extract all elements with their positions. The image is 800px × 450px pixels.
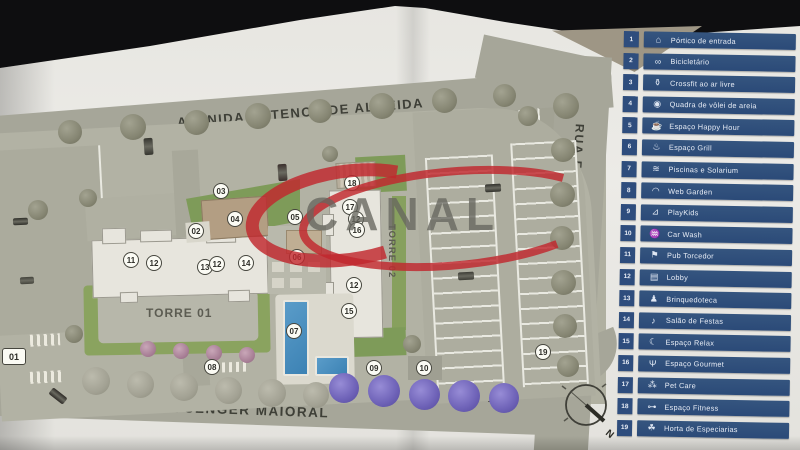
map-marker-04: 04 [227, 211, 243, 227]
map-marker-12: 12 [346, 277, 362, 293]
legend-label: PlayKids [668, 208, 699, 218]
legend-number: 10 [620, 225, 635, 241]
legend-number: 12 [620, 268, 635, 284]
gourmet-icon: Ψ [644, 358, 661, 368]
tree-icon [239, 347, 255, 363]
legend-number: 4 [623, 96, 638, 112]
map-marker-10: 10 [416, 360, 432, 376]
legend-label: Piscinas e Solarium [669, 165, 739, 175]
legend-label: Espaço Grill [669, 143, 712, 153]
grill-icon: ♨ [648, 142, 665, 153]
legend-item-7: 7≋Piscinas e Solarium [621, 161, 793, 180]
tree-icon [58, 120, 82, 144]
pet-care-icon: ⁂ [644, 379, 661, 390]
tree-icon [245, 103, 271, 129]
map-marker-06: 06 [289, 249, 305, 265]
pool-lane [313, 330, 335, 334]
compass-north-label: N [603, 428, 616, 441]
lobby-icon: ▤ [646, 271, 663, 282]
tree-icon [432, 88, 457, 113]
map-marker-18: 18 [344, 175, 360, 191]
entrance-gate-icon: ⌂ [650, 34, 667, 44]
party-hall-icon: ♪ [645, 315, 662, 325]
legend-bar: ♪Salão de Festas [639, 312, 791, 331]
map-marker-15: 15 [341, 303, 357, 319]
building-tower1-wing [120, 292, 138, 303]
legend-bar: ΨEspaço Gourmet [638, 355, 790, 374]
tree-icon [493, 84, 516, 107]
legend-label: Pórtico de entrada [671, 35, 736, 45]
legend-label: Pub Torcedor [667, 251, 714, 261]
legend-number: 14 [619, 312, 634, 328]
tree-icon [557, 355, 579, 377]
car-icon [277, 163, 287, 181]
tree-icon [322, 146, 338, 162]
map-marker-12: 12 [209, 256, 225, 272]
legend-number: 3 [623, 74, 638, 90]
legend-label: Car Wash [667, 230, 702, 240]
tree-icon [140, 341, 156, 357]
legend-number: 15 [618, 333, 633, 349]
brochure-photo: AVENIDA ANTENOR DE ALMEIDA RUA FIORAVANT… [0, 0, 800, 450]
legend-label: Horta de Especiarias [664, 424, 738, 434]
legend-bar: ⊿PlayKids [641, 204, 793, 223]
tree-icon [551, 138, 575, 162]
legend-number: 11 [620, 247, 635, 263]
legend-bar: ♨Espaço Grill [642, 139, 794, 158]
map-marker-01: 01 [2, 348, 26, 365]
legend-item-11: 11⚑Pub Torcedor [620, 247, 792, 266]
tree-icon [409, 379, 440, 410]
map-marker-14: 14 [238, 255, 254, 271]
building-tower1-wing [102, 228, 126, 245]
kettlebell-icon: ⚱ [649, 77, 666, 88]
car-icon [458, 272, 474, 281]
tree-icon [65, 325, 83, 343]
map-marker-09: 09 [366, 360, 382, 376]
car-icon [143, 137, 153, 155]
tower1-label: TORRE 01 [146, 306, 212, 320]
map-marker-05: 05 [287, 209, 303, 225]
tree-icon [173, 343, 189, 359]
legend-bar: ⚑Pub Torcedor [640, 247, 792, 266]
tree-icon [550, 226, 574, 250]
legend-bar: ☘Horta de Especiarias [637, 420, 789, 439]
tree-icon [489, 383, 519, 413]
legend-item-2: 2∞Bicicletário [623, 53, 795, 72]
car-icon [12, 217, 27, 225]
tree-icon [184, 110, 209, 135]
pergola [290, 278, 302, 288]
tree-icon [215, 377, 242, 404]
pergola [272, 278, 284, 288]
legend-label: Salão de Festas [666, 316, 723, 326]
dumbbell-icon: ⊶ [643, 401, 660, 412]
legend-number: 1 [624, 31, 639, 47]
legend-label: Crossfit ao ar livre [670, 79, 735, 89]
legend-number: 5 [622, 117, 637, 133]
legend-number: 19 [617, 420, 632, 436]
playground-slide-icon: ⊿ [647, 207, 664, 218]
legend-item-6: 6♨Espaço Grill [622, 139, 794, 158]
map-marker-07: 07 [286, 323, 302, 339]
legend-item-19: 19☘Horta de Especiarias [617, 420, 789, 439]
building-tower1-wing [228, 290, 250, 303]
legend-item-9: 9⊿PlayKids [621, 204, 793, 223]
legend-number: 18 [617, 398, 632, 414]
car-icon [20, 276, 34, 284]
legend-label: Brinquedoteca [666, 294, 717, 304]
legend-number: 2 [623, 53, 638, 69]
relax-icon: ☾ [644, 336, 661, 347]
legend-bar: ⚱Crossfit ao ar livre [643, 75, 795, 94]
tree-icon [258, 379, 286, 407]
volleyball-icon: ◉ [649, 99, 666, 110]
legend-bar: ♟Brinquedoteca [639, 290, 791, 309]
legend-bar: ◉Quadra de vôlei de areia [643, 96, 795, 115]
legend-item-4: 4◉Quadra de vôlei de areia [623, 96, 795, 115]
tree-icon [82, 367, 110, 395]
tree-icon [518, 106, 538, 126]
tree-icon [550, 182, 575, 207]
legend-bar: ♒Car Wash [640, 226, 792, 245]
compass-rose: N [552, 378, 624, 444]
legend-rows: 1⌂Pórtico de entrada2∞Bicicletário3⚱Cros… [617, 31, 796, 439]
crosswalk [222, 362, 248, 373]
legend-label: Espaço Relax [665, 338, 714, 348]
amenities-legend: 1⌂Pórtico de entrada2∞Bicicletário3⚱Cros… [617, 31, 796, 444]
legend-item-13: 13♟Brinquedoteca [619, 290, 791, 309]
tree-icon [28, 200, 48, 220]
legend-number: 9 [621, 204, 636, 220]
legend-item-16: 16ΨEspaço Gourmet [618, 355, 790, 374]
map-marker-12: 12 [146, 255, 162, 271]
building-tower1-wing [140, 230, 172, 243]
tower2-label: TORRE 02 [386, 224, 397, 278]
tree-icon [170, 373, 198, 401]
legend-label: Espaço Fitness [664, 402, 718, 412]
legend-bar: ∞Bicicletário [643, 53, 795, 72]
legend-number: 17 [618, 376, 633, 392]
tree-icon [127, 371, 154, 398]
legend-label: Espaço Gourmet [665, 359, 724, 369]
tree-icon [448, 380, 480, 412]
legend-bar: ⌂Pórtico de entrada [644, 31, 796, 50]
wifi-icon: ◠ [647, 185, 664, 196]
crosswalk [30, 333, 61, 347]
pergola [308, 262, 320, 272]
happy-hour-icon: ☕ [648, 120, 665, 131]
legend-bar: ⊶Espaço Fitness [637, 398, 789, 417]
legend-number: 13 [619, 290, 634, 306]
tree-icon [308, 99, 332, 123]
legend-bar: ⁂Pet Care [638, 377, 790, 396]
tree-icon [368, 375, 400, 407]
legend-item-5: 5☕Espaço Happy Hour [622, 117, 794, 136]
tree-icon [553, 314, 577, 338]
legend-label: Espaço Happy Hour [669, 122, 740, 132]
car-icon [485, 184, 501, 193]
legend-number: 7 [621, 161, 636, 177]
crosswalk [30, 370, 63, 384]
legend-bar: ☕Espaço Happy Hour [642, 118, 794, 137]
toy-room-icon: ♟ [645, 293, 662, 304]
map-marker-08: 08 [204, 359, 220, 375]
legend-bar: ◠Web Garden [641, 182, 793, 201]
legend-bar: ☾Espaço Relax [638, 334, 790, 353]
tree-icon [553, 93, 579, 119]
legend-label: Quadra de vôlei de areia [670, 100, 757, 111]
car-wash-icon: ♒ [646, 228, 663, 239]
tree-icon [303, 382, 329, 408]
legend-item-1: 1⌂Pórtico de entrada [624, 31, 796, 50]
tree-icon [329, 373, 359, 403]
herb-garden-icon: ☘ [643, 423, 660, 434]
legend-label: Web Garden [668, 186, 712, 196]
map-marker-02: 02 [188, 223, 204, 239]
legend-number: 8 [621, 182, 636, 198]
map-marker-11: 11 [123, 252, 139, 268]
legend-bar: ≋Piscinas e Solarium [641, 161, 793, 180]
legend-item-18: 18⊶Espaço Fitness [617, 398, 789, 417]
map-marker-19: 19 [535, 344, 551, 360]
tree-icon [120, 114, 146, 140]
sports-pub-icon: ⚑ [646, 250, 663, 261]
map-marker-16: 16 [349, 222, 365, 238]
legend-item-3: 3⚱Crossfit ao ar livre [623, 74, 795, 93]
legend-item-15: 15☾Espaço Relax [618, 333, 790, 352]
tree-icon [79, 189, 97, 207]
legend-item-17: 17⁂Pet Care [618, 376, 790, 395]
legend-item-12: 12▤Lobby [620, 268, 792, 287]
tree-icon [551, 270, 576, 295]
legend-item-8: 8◠Web Garden [621, 182, 793, 201]
legend-label: Bicicletário [670, 57, 709, 67]
legend-label: Lobby [667, 273, 689, 282]
bicycle-icon: ∞ [649, 56, 666, 66]
legend-item-14: 14♪Salão de Festas [619, 312, 791, 331]
legend-label: Pet Care [665, 381, 696, 391]
legend-bar: ▤Lobby [640, 269, 792, 288]
pergola [272, 262, 284, 272]
pool-icon: ≋ [647, 163, 664, 174]
legend-number: 16 [618, 355, 633, 371]
legend-item-10: 10♒Car Wash [620, 225, 792, 244]
map-marker-03: 03 [213, 183, 229, 199]
legend-number: 6 [622, 139, 637, 155]
tree-icon [403, 335, 421, 353]
tree-icon [369, 93, 395, 119]
